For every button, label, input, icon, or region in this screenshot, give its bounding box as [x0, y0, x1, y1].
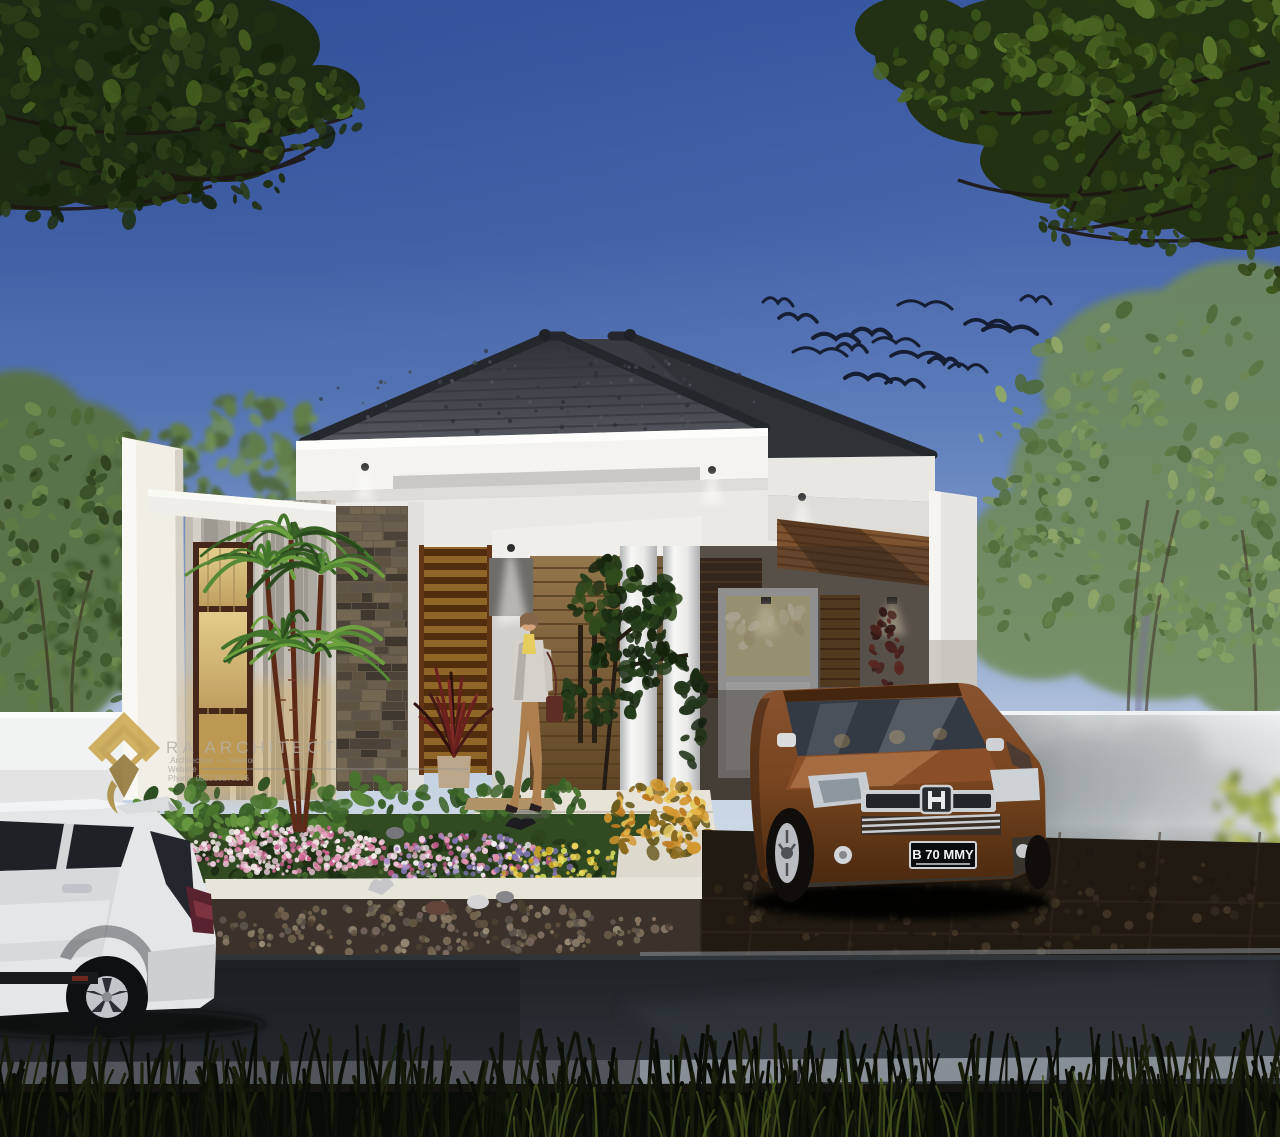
svg-text:RA ARCHITECT: RA ARCHITECT [166, 738, 338, 757]
svg-text:.com: .com [452, 765, 470, 774]
svg-text:.Architecture — Interior: .Architecture — Interior [168, 756, 255, 765]
svg-text:B 70 MMY: B 70 MMY [912, 847, 974, 862]
svg-text:Phone 082235876196: Phone 082235876196 [168, 774, 250, 783]
svg-text:Website: Website [168, 765, 197, 774]
